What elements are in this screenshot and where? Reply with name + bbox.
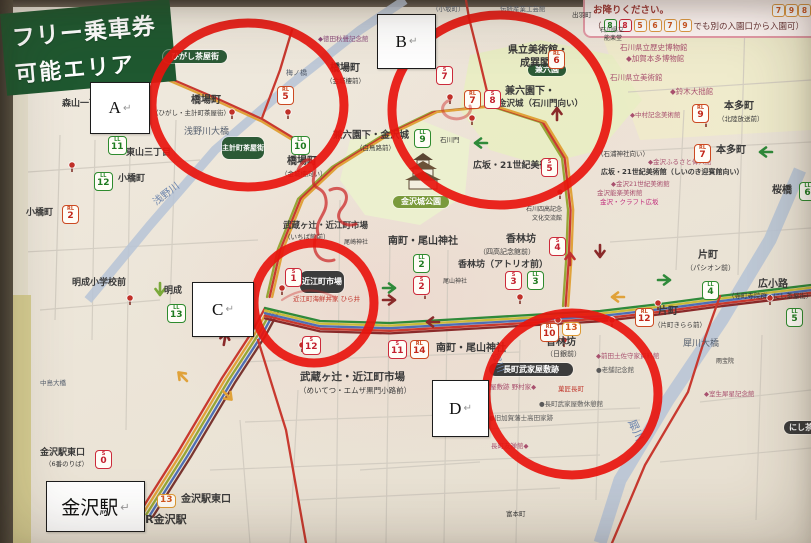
map-label: 犀川大橋 <box>683 340 719 349</box>
annotation-letter: 金沢駅 <box>61 493 118 520</box>
photographed-bus-map: フリー乗車券 可能エリア お降りください。 798 （ 885679 でも別の入… <box>0 0 811 543</box>
map-label: 梅ノ橋 <box>286 70 307 77</box>
route-badge-S1: S1 <box>285 268 302 287</box>
route-badge-RL10: RL10 <box>540 323 559 342</box>
area-pill: ひがし茶屋街 <box>163 50 227 63</box>
map-label: （金城樓向い） <box>281 171 327 178</box>
route-badge-RL14: RL14 <box>410 340 429 359</box>
area-pill: 近江町市場 <box>300 271 344 293</box>
map-label: ◆室生犀星記念館 <box>704 391 755 398</box>
route-badge-LL2: LL2 <box>413 254 430 273</box>
map-label: 出羽町 <box>572 12 592 19</box>
annotation-letter: B <box>396 32 407 52</box>
map-label: 富本町 <box>506 511 526 518</box>
route-badge-S2: S2 <box>413 276 430 295</box>
route-badge-S11: S11 <box>388 340 407 359</box>
route-badge-LL6: LL6 <box>799 182 811 201</box>
map-label: 南町・尾山神社 <box>388 237 458 248</box>
map-label: 本多町 <box>724 102 754 113</box>
map-label: ◆前田土佐守家資料館 <box>596 353 660 360</box>
legend-badge-6: 6 <box>649 19 662 32</box>
map-edge-yellow <box>13 295 31 543</box>
map-label: 明成 <box>164 287 182 296</box>
annotation-b[interactable]: B↵ <box>377 14 436 69</box>
map-label: （四高記念館前） <box>479 249 535 256</box>
return-mark: ↵ <box>120 500 130 514</box>
legend-badge-8: 8 <box>798 4 811 17</box>
map-label: 雨宝院 <box>716 359 734 365</box>
annotation-a[interactable]: A↵ <box>90 82 150 134</box>
map-label: （パシオン前） <box>686 265 735 272</box>
map-label: 金沢駅東口 <box>40 449 85 458</box>
map-label: JR金沢駅 <box>141 514 187 526</box>
free-pass-area-banner: フリー乗車券 可能エリア <box>0 0 176 96</box>
route-badge-13: 13 <box>157 494 176 508</box>
map-label: 橋場町 <box>287 157 317 168</box>
map-label: 明成小学校前 <box>72 279 126 288</box>
map-label: 尾崎神社 <box>344 240 368 246</box>
map-label: 武蔵ヶ辻・近江町市場 <box>283 222 368 231</box>
map-label: ◆徳田秋聲記念館 <box>318 36 369 43</box>
return-mark: ↵ <box>409 36 418 47</box>
route-badge-S12: S12 <box>302 336 321 355</box>
map-label: （ひがし・主計町茶屋街） <box>152 110 230 117</box>
map-label: 菓匠長町 <box>558 386 584 393</box>
legend-badge-5: 5 <box>634 19 647 32</box>
annotation-c[interactable]: C↵ <box>192 282 254 337</box>
return-mark: ↵ <box>123 103 132 114</box>
map-label: 小橋町 <box>26 209 53 218</box>
map-label: 香林坊 <box>506 235 536 246</box>
route-badge-RL5: RL5 <box>277 86 294 105</box>
route-badge-S3: S3 <box>505 271 522 290</box>
route-badge-13: 13 <box>562 322 581 336</box>
legend-badge-7: 7 <box>772 4 785 17</box>
map-label: 能楽堂 <box>604 36 622 42</box>
legend-badge-9: 9 <box>679 19 692 32</box>
map-label: 近江町海鮮丼家 ひら井 <box>293 296 360 303</box>
map-label: 中島大橋 <box>40 380 66 387</box>
route-badge-S4: S4 <box>549 237 566 256</box>
route-badge-S8: S8 <box>484 90 501 109</box>
route-badge-LL12: LL12 <box>94 172 113 191</box>
return-mark: ↵ <box>463 403 472 414</box>
route-badge-S0: S0 <box>95 450 112 469</box>
map-label: 桜橋 <box>772 186 792 197</box>
legend-line2-suffix: でも別の入園口から入園可） <box>694 20 805 32</box>
route-badge-S5: S5 <box>541 158 558 177</box>
map-label: ●旧加賀藩士高田家跡 <box>489 415 553 422</box>
annotation-d[interactable]: D↵ <box>432 380 489 437</box>
map-label: 橋場町 <box>330 64 360 75</box>
map-label: 小橋町 <box>118 175 145 184</box>
map-label: 広坂・21世紀美術館（しいのき迎賓館向い） <box>601 169 744 176</box>
area-pill: 主計町茶屋街 <box>222 137 264 159</box>
map-label: ◆鈴木大拙館 <box>670 88 713 96</box>
annotation-kanazawa-station[interactable]: 金沢駅↵ <box>46 481 145 532</box>
map-label: 石川門 <box>440 137 460 144</box>
map-label: （白鳥路前） <box>356 145 395 152</box>
map-label: 長町友禅館◆ <box>491 443 529 450</box>
route-badge-LL10: LL10 <box>291 136 310 155</box>
route-badge-RL12: RL12 <box>635 308 654 327</box>
map-label: 文化交流館 <box>532 216 562 222</box>
route-badge-LL11: LL11 <box>108 136 127 155</box>
map-label: ◆金沢21世紀美術館 <box>611 181 670 188</box>
map-label: 兼六園下・金沢城 <box>333 131 409 141</box>
map-label: 本多町 <box>716 146 746 157</box>
map-label: （めいてつ・エムザ黒門小路前） <box>299 387 411 395</box>
return-mark: ↵ <box>225 304 234 315</box>
annotation-letter: D <box>449 399 461 419</box>
map-label: （小坂町） <box>432 6 465 13</box>
map-label: 金沢城（石川門向い） <box>498 100 583 109</box>
map-label: （日銀前） <box>546 351 581 358</box>
route-badge-LL9: LL9 <box>414 129 431 148</box>
route-badge-RL9: RL9 <box>692 104 709 123</box>
map-label: 石川県立 <box>600 28 624 34</box>
map-label: 橋場町 <box>191 96 221 107</box>
route-badge-LL13: LL13 <box>167 304 186 323</box>
annotation-letter: C <box>212 300 223 320</box>
map-label: 金沢・クラフト広坂 <box>600 199 659 206</box>
map-label: ◆中村記念美術館 <box>630 112 681 119</box>
route-badge-S7: S7 <box>436 66 453 85</box>
map-label: 金沢駅東口 <box>181 495 231 506</box>
route-badge-RL6: RL6 <box>548 50 565 69</box>
map-label: 東山三丁目 <box>126 149 171 158</box>
legend-badges-line1: 798 <box>772 0 811 17</box>
map-label: 尾山神社 <box>443 279 467 285</box>
map-label: ●老舗記念館 <box>596 367 634 374</box>
map-label: （北陸放送前） <box>718 116 764 123</box>
route-badge-LL3: LL3 <box>527 271 544 290</box>
route-badge-LL5: LL5 <box>786 308 803 327</box>
map-label: （石浦神社向い） <box>597 151 649 158</box>
map-label: 金沢能楽美術館 <box>597 190 643 197</box>
map-label: 片町 <box>698 251 718 262</box>
map-label: 成巽閣 <box>520 59 550 70</box>
route-badge-RL2: RL2 <box>62 205 79 224</box>
map-label: 石川県立歴史博物館 <box>620 44 688 52</box>
map-label: 広小路 <box>758 280 788 291</box>
annotation-letter: A <box>109 98 121 118</box>
map-label: 香林坊（アトリオ前） <box>458 261 548 270</box>
map-label: 兼六園下・ <box>505 87 555 98</box>
route-badge-LL4: LL4 <box>702 281 719 300</box>
map-label: ◆加賀本多博物館 <box>626 55 684 63</box>
map-label: ●長町武家屋敷休憩館 <box>539 401 603 408</box>
map-label: （いちば館前） <box>284 234 330 241</box>
legend-badge-7: 7 <box>664 19 677 32</box>
map-label: （片町きらら前） <box>654 322 706 329</box>
map-label: 片町 <box>658 307 678 318</box>
map-label: 石川県立美術館 <box>610 74 663 82</box>
legend-text-line1: お降りください。 <box>593 0 769 16</box>
map-label: 石川四高記念 <box>526 207 562 213</box>
legend-badge-9: 9 <box>785 4 798 17</box>
map-label: 武蔵ヶ辻・近江町市場 <box>300 372 405 383</box>
map-label: （寺町寺院群・にし茶屋街） <box>728 293 811 300</box>
map-label: 浅野川大橋 <box>184 128 229 137</box>
map-label: （6番のりば） <box>45 461 88 468</box>
area-pill: 金沢城公園 <box>393 196 449 208</box>
route-badge-RL7: RL7 <box>464 90 481 109</box>
map-label: （金城樓前） <box>326 78 365 85</box>
route-badge-RL7: RL7 <box>694 144 711 163</box>
area-pill: にし茶屋街 <box>784 421 811 434</box>
map-label: 伝統産業工芸館 <box>500 6 546 13</box>
